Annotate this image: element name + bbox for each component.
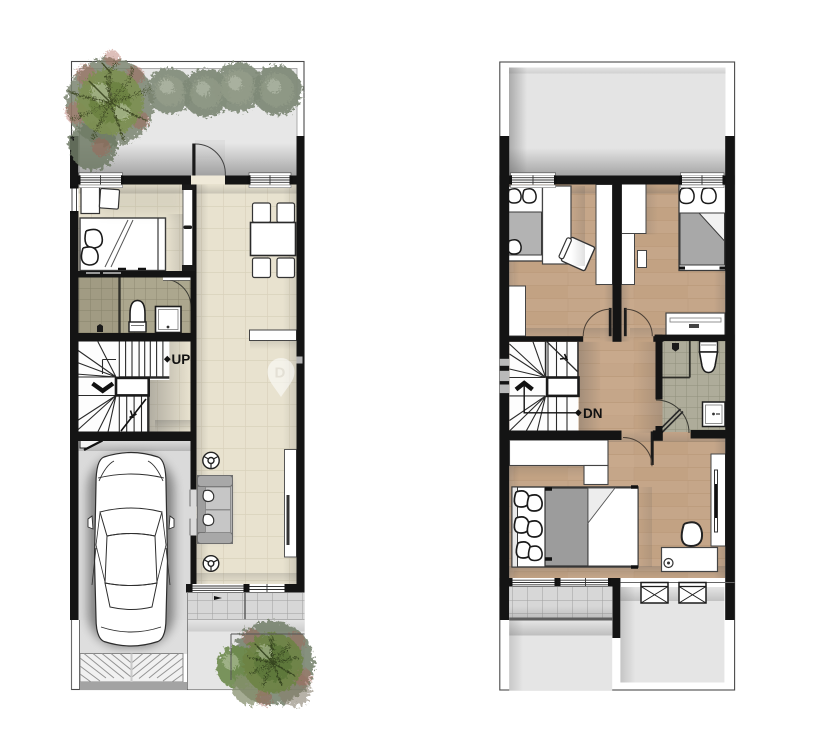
svg-text:D: D: [275, 365, 286, 382]
svg-text:DN: DN: [583, 406, 603, 421]
svg-text:UP: UP: [172, 352, 191, 367]
